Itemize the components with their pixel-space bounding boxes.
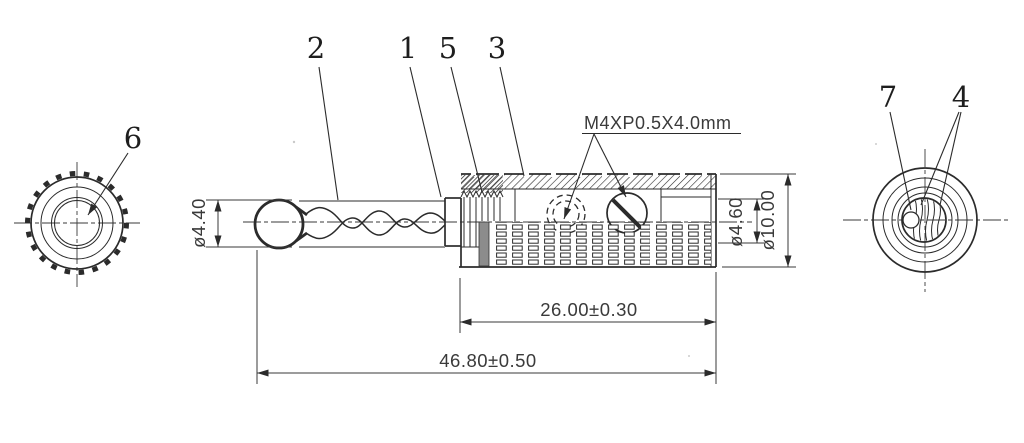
leader-line-2 <box>319 67 338 200</box>
rear-wire-hole <box>903 212 919 228</box>
callout-3: 3 <box>488 31 506 65</box>
pin-ball-tip <box>255 200 303 248</box>
callout-7: 7 <box>879 80 897 114</box>
spring-wave-upper <box>306 208 445 228</box>
dimensions: ø4.40 ø4.60 ø10.00 26.00±0.30 46.80±0.5 <box>188 174 796 384</box>
thread-spec-callout: M4XP0.5X4.0mm <box>564 113 741 219</box>
scan-speck <box>688 355 690 357</box>
spring-wave-lower <box>306 218 445 239</box>
rear-view: 7 4 <box>843 80 1008 292</box>
dim-text-overall-length: 46.80±0.50 <box>439 350 536 371</box>
dim-text-bore-diameter: ø4.60 <box>725 197 746 247</box>
knurl-grid-right <box>656 222 711 266</box>
leader-line-4b <box>940 112 961 205</box>
insulator-ring <box>479 222 489 266</box>
dim-text-tip-diameter: ø4.40 <box>188 198 209 248</box>
thread-spec-text: M4XP0.5X4.0mm <box>584 113 732 133</box>
pin-collar <box>445 198 461 267</box>
callout-6: 6 <box>124 121 142 155</box>
callout-5: 5 <box>439 31 457 65</box>
dim-tip-diameter: ø4.40 <box>188 198 292 248</box>
dim-text-insert-length: 26.00±0.30 <box>540 299 637 320</box>
leader-line-1 <box>410 67 441 197</box>
banana-plug-drawing: 6 <box>0 0 1024 443</box>
leader-line-7 <box>890 112 911 210</box>
scan-speck <box>875 143 877 145</box>
technical-drawing-sheet: 6 <box>0 0 1024 443</box>
knurl-grid-left <box>491 222 650 266</box>
callout-4: 4 <box>952 80 970 114</box>
scan-speck <box>293 141 295 143</box>
callout-1: 1 <box>399 31 417 65</box>
leader-line-3 <box>500 67 524 176</box>
side-view: 2 1 5 3 M4XP0.5X4.0mm <box>243 31 752 267</box>
callout-2: 2 <box>307 31 325 65</box>
dim-overall-length: 46.80±0.50 <box>257 250 716 384</box>
dim-text-body-diameter: ø10.00 <box>757 190 778 251</box>
front-view: 6 <box>14 121 142 287</box>
